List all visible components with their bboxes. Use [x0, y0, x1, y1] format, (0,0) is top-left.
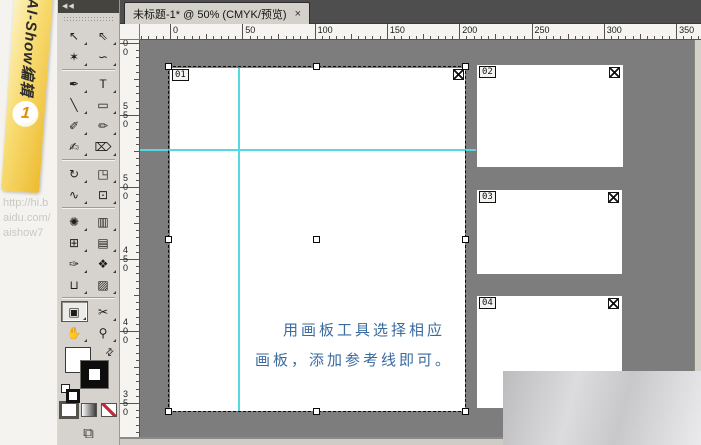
h-ruler-label: 0	[173, 25, 178, 35]
warp-tool-icon: ∿	[69, 189, 79, 201]
h-ruler-label: 300	[607, 25, 622, 35]
hand-tool[interactable]: ✋	[61, 322, 88, 343]
mesh-tool[interactable]: ⊞	[61, 232, 88, 253]
zoom-tool-icon: ⚲	[99, 327, 108, 339]
eraser-tool[interactable]: ⌦	[90, 136, 117, 157]
toolbar-separator	[62, 297, 115, 299]
live-paint-selection-tool-icon: ▨	[97, 279, 108, 291]
paintbrush-tool[interactable]: ✐	[61, 115, 88, 136]
zoom-tool[interactable]: ⚲	[90, 322, 117, 343]
document-tabbar: 未标题-1* @ 50% (CMYK/预览) ×	[120, 0, 701, 24]
document-tab-title: 未标题-1* @ 50% (CMYK/预览)	[133, 6, 287, 22]
watermark-url: http://hi.b aidu.com/ aishow7	[3, 196, 51, 241]
paintbrush-tool-icon: ✐	[69, 120, 79, 132]
lasso-tool[interactable]: ∽	[90, 46, 117, 67]
eyedropper-tool-icon: ✑	[69, 258, 79, 270]
gradient-tool-icon: ▤	[97, 237, 108, 249]
direct-selection-tool-icon: ⇖	[98, 30, 108, 42]
rotate-tool-icon: ↻	[69, 168, 79, 180]
graph-tool-icon: ▥	[97, 216, 108, 228]
note-line-2: 画板，添加参考线即可。	[255, 346, 453, 376]
artboard-03-delete-icon[interactable]	[608, 192, 619, 203]
v-ruler-label: 5 5 0	[123, 102, 128, 129]
h-ruler-label: 350	[679, 25, 694, 35]
direct-selection-tool[interactable]: ⇖	[90, 25, 117, 46]
toolbar-separator	[62, 69, 115, 71]
slice-tool[interactable]: ✂	[90, 301, 117, 322]
artboard-handle-nw[interactable]	[165, 63, 172, 70]
h-ruler-label: 150	[390, 25, 405, 35]
panel-grip[interactable]	[63, 16, 114, 22]
tools-panel-header[interactable]: ◀◀	[58, 0, 119, 13]
scale-tool-icon: ◳	[97, 168, 108, 180]
tab-close-icon[interactable]: ×	[295, 8, 301, 20]
gradient-tool[interactable]: ▤	[90, 232, 117, 253]
symbol-sprayer-tool-icon: ✺	[69, 216, 79, 228]
slice-tool-icon: ✂	[98, 306, 108, 318]
artboard-01-delete-icon[interactable]	[453, 69, 464, 80]
watermark-number-badge: 1	[12, 100, 40, 128]
h-ruler-label: 100	[318, 25, 333, 35]
blob-brush-tool-icon: ✍	[69, 141, 79, 153]
toolbar-separator	[62, 207, 115, 209]
artboard-03[interactable]: 03	[477, 190, 622, 274]
v-ruler-label: 6 0 0	[123, 40, 128, 57]
blob-brush-tool[interactable]: ✍	[61, 136, 88, 157]
h-ruler-label: 250	[535, 25, 550, 35]
note-line-1: 用画板工具选择相应	[255, 316, 453, 346]
watermark-ribbon: AI-Show编辑 1	[1, 0, 53, 193]
none-button[interactable]	[101, 403, 117, 417]
pen-tool[interactable]: ✒	[61, 73, 88, 94]
document-area: 未标题-1* @ 50% (CMYK/预览) × 050100150200250…	[120, 0, 701, 445]
artboard-handle-w[interactable]	[165, 236, 172, 243]
mesh-tool-icon: ⊞	[69, 237, 79, 249]
graph-tool[interactable]: ▥	[90, 211, 117, 232]
artboard-04-delete-icon[interactable]	[608, 298, 619, 309]
v-ruler-label: 5 0 0	[123, 174, 128, 201]
toolbar-separator	[62, 159, 115, 161]
blend-tool-icon: ❖	[98, 258, 109, 270]
h-ruler-label: 50	[245, 25, 255, 35]
artboard-handle-center[interactable]	[313, 236, 320, 243]
v-ruler-label: 3 5 0	[123, 390, 128, 417]
live-paint-selection-tool[interactable]: ▨	[90, 274, 117, 295]
pencil-tool-icon: ✏	[98, 120, 108, 132]
eraser-tool-icon: ⌦	[95, 141, 112, 153]
artboard-handle-e[interactable]	[462, 236, 469, 243]
artboard-handle-s[interactable]	[313, 408, 320, 415]
rectangle-tool-icon: ▭	[97, 99, 108, 111]
color-button[interactable]	[61, 403, 77, 417]
v-ruler-label: 4 0 0	[123, 318, 128, 345]
artboard-note[interactable]: 用画板工具选择相应 画板，添加参考线即可。	[255, 316, 453, 376]
artboard-handle-se[interactable]	[462, 408, 469, 415]
pencil-tool[interactable]: ✏	[90, 115, 117, 136]
v-ruler-label: 4 5 0	[123, 246, 128, 273]
rotate-tool[interactable]: ↻	[61, 163, 88, 184]
watermark-strip: AI-Show编辑 1 http://hi.b aidu.com/ aishow…	[0, 0, 58, 445]
artboard-04-label: 04	[479, 297, 496, 309]
tools-panel: ◀◀ ↖⇖✶∽✒T╲▭✐✏✍⌦↻◳∿⊡✺▥⊞▤✑❖⊔▨▣✂✋⚲ ⇄ ⧉	[58, 0, 120, 445]
illustrator-window: AI-Show编辑 1 http://hi.b aidu.com/ aishow…	[0, 0, 701, 445]
artboard-03-label: 03	[479, 191, 496, 203]
free-transform-tool-icon: ⊡	[98, 189, 108, 201]
gradient-button[interactable]	[81, 403, 97, 417]
artboard-02-label: 02	[479, 66, 496, 78]
hand-tool-icon: ✋	[67, 327, 82, 339]
line-segment-tool-icon: ╲	[70, 99, 77, 111]
collapse-panel-icon[interactable]: ◀◀	[62, 3, 75, 10]
draw-modes-button[interactable]: ⧉	[58, 425, 119, 442]
artboard-02[interactable]: 02	[477, 65, 623, 167]
line-segment-tool[interactable]: ╲	[61, 94, 88, 115]
lasso-tool-icon: ∽	[98, 51, 108, 63]
ruler-corner[interactable]	[120, 24, 140, 40]
horizontal-ruler[interactable]: 050100150200250300350	[140, 24, 701, 40]
eyedropper-tool[interactable]: ✑	[61, 253, 88, 274]
fill-stroke-controls: ⇄	[61, 347, 116, 395]
artboard-01-label: 01	[172, 69, 189, 81]
document-tab[interactable]: 未标题-1* @ 50% (CMYK/预览) ×	[124, 2, 310, 24]
tool-grid: ↖⇖✶∽✒T╲▭✐✏✍⌦↻◳∿⊡✺▥⊞▤✑❖⊔▨▣✂✋⚲	[58, 25, 119, 343]
selection-tool-icon: ↖	[69, 30, 79, 42]
live-paint-bucket-tool-icon: ⊔	[69, 279, 78, 291]
swap-fill-stroke-icon[interactable]: ⇄	[103, 346, 117, 360]
artboard-tool[interactable]: ▣	[61, 301, 88, 322]
warp-tool[interactable]: ∿	[61, 184, 88, 205]
blend-tool[interactable]: ❖	[90, 253, 117, 274]
vertical-ruler[interactable]: 6 0 05 5 05 0 04 5 04 0 03 5 0	[120, 40, 140, 437]
live-paint-bucket-tool[interactable]: ⊔	[61, 274, 88, 295]
scale-tool[interactable]: ◳	[90, 163, 117, 184]
pen-tool-icon: ✒	[69, 78, 79, 90]
type-tool[interactable]: T	[90, 73, 117, 94]
default-fill-stroke-icon[interactable]	[61, 384, 70, 393]
selection-tool[interactable]: ↖	[61, 25, 88, 46]
watermark-overlay	[503, 371, 701, 445]
artboard-02-delete-icon[interactable]	[609, 67, 620, 78]
artboard-tool-icon: ▣	[68, 306, 79, 318]
artboard-handle-sw[interactable]	[165, 408, 172, 415]
symbol-sprayer-tool[interactable]: ✺	[61, 211, 88, 232]
h-ruler-label: 200	[462, 25, 477, 35]
magic-wand-tool-icon: ✶	[69, 51, 79, 63]
free-transform-tool[interactable]: ⊡	[90, 184, 117, 205]
stroke-swatch[interactable]	[81, 361, 108, 388]
magic-wand-tool[interactable]: ✶	[61, 46, 88, 67]
rectangle-tool[interactable]: ▭	[90, 94, 117, 115]
paint-style-buttons	[58, 403, 119, 417]
artboard-handle-n[interactable]	[313, 63, 320, 70]
type-tool-icon: T	[99, 78, 106, 90]
watermark-title: AI-Show编辑	[16, 0, 44, 98]
